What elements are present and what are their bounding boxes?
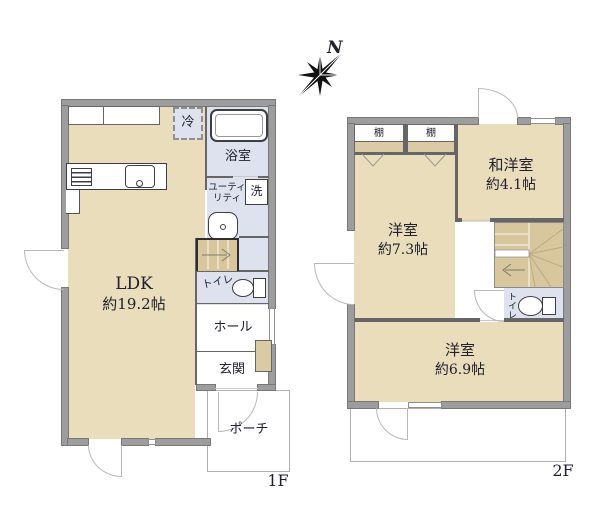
- porch-label: ポーチ: [209, 422, 289, 439]
- toilet2f-bowl: [518, 296, 543, 316]
- wall-bath-utility-a: [207, 176, 233, 178]
- stairs-2f: [494, 222, 564, 288]
- wall-2f-bottom-a: [348, 402, 378, 408]
- bathtub-inner: [215, 114, 263, 137]
- floor2-label: 2F: [543, 461, 583, 482]
- toilet2f-label: トイレ: [505, 289, 517, 321]
- western1-area: 約7.3帖: [350, 241, 456, 259]
- washer-label: 洗: [250, 184, 262, 200]
- closet-right-door-mark: [423, 153, 447, 168]
- door-arc-2f-top: [478, 88, 518, 118]
- ldk-label: LDK 約19.2帖: [70, 273, 198, 315]
- closet-left: 棚: [354, 124, 404, 142]
- threshold-entrance: [215, 388, 258, 389]
- wall-1f-bottom-a: [68, 439, 88, 445]
- door-arc-2f-left: [314, 263, 354, 305]
- wall-bath-utility-b: [258, 176, 269, 178]
- stairs-2f-drawing: [495, 223, 563, 287]
- counter-notch: [66, 190, 80, 214]
- wall-entrance-bottom-a: [197, 385, 215, 390]
- refrigerator-label: 冷: [181, 115, 194, 132]
- closet-right: 棚: [407, 124, 455, 142]
- closet-right-shelf: [407, 141, 455, 153]
- toilet2f-tank: [542, 297, 556, 315]
- kitchen-top-counter: [68, 106, 160, 125]
- window-2f-top: [530, 118, 556, 124]
- hall-label: ホール: [197, 320, 269, 337]
- utility-label-line2: リティ: [204, 193, 250, 204]
- refrigerator-box: 冷: [173, 107, 203, 140]
- western2-area: 約6.9帖: [394, 361, 526, 379]
- western2-label: 洋室 約6.9帖: [394, 341, 526, 379]
- wall-2f-bottom-b: [442, 402, 570, 408]
- kitchen-faucet-icon: [136, 180, 143, 187]
- wall-entrance-bottom-b: [258, 385, 275, 390]
- door-arc-ldk-bottom: [88, 445, 122, 477]
- wall-2f-mid-a: [354, 318, 480, 322]
- japanese-western-label: 和洋室 約4.1帖: [456, 156, 566, 194]
- utility-label-line1: ユーティ: [204, 182, 250, 193]
- japanese-western-area: 約4.1帖: [456, 176, 566, 194]
- door-arc-ldk-left: [24, 250, 64, 290]
- ldk-name: LDK: [70, 273, 198, 295]
- western1-name: 洋室: [350, 221, 456, 241]
- kitchen-top-counter-divider: [103, 106, 104, 125]
- wall-utility-bottom: [239, 236, 269, 238]
- window-2f-bottom: [408, 402, 442, 408]
- bathroom-label: 浴室: [207, 149, 269, 166]
- wall-1f-bottom-b: [122, 439, 148, 445]
- stove-icon: [71, 168, 92, 186]
- washbasin-drain-icon: [220, 224, 226, 230]
- closet-left-door-mark: [361, 153, 385, 168]
- wall-2f-top-b: [518, 118, 530, 124]
- wall-toilet1f-bottom: [197, 303, 269, 304]
- floor1-label: 1F: [258, 471, 298, 492]
- bathtub: [210, 109, 268, 142]
- japanese-western-name: 和洋室: [456, 156, 566, 176]
- closet-right-label: 棚: [426, 127, 436, 140]
- floorplan-canvas: 冷 洗 棚 棚: [0, 0, 600, 511]
- closet-left-shelf: [354, 141, 404, 153]
- toilet1f-tank: [253, 278, 266, 298]
- stairs-1f-drawing: [198, 240, 237, 269]
- western2-name: 洋室: [394, 341, 526, 361]
- threshold-bath: [233, 176, 258, 177]
- closet-left-label: 棚: [374, 127, 384, 140]
- utility-label: ユーティ リティ: [204, 182, 250, 205]
- compass-north-label: N: [327, 37, 343, 59]
- western1-label: 洋室 約7.3帖: [350, 221, 456, 259]
- wall-1f-right-a: [269, 106, 275, 308]
- room-ldk-floor-lower: [68, 238, 195, 439]
- threshold-jwestern: [462, 220, 490, 221]
- entrance-label: 玄関: [199, 362, 265, 379]
- stairs-1f: [196, 238, 239, 271]
- ldk-area: 約19.2帖: [70, 295, 198, 315]
- window-1f-bottom: [148, 439, 156, 445]
- wall-1f-left-b: [62, 288, 68, 445]
- wall-1f-bottom-c: [156, 439, 210, 445]
